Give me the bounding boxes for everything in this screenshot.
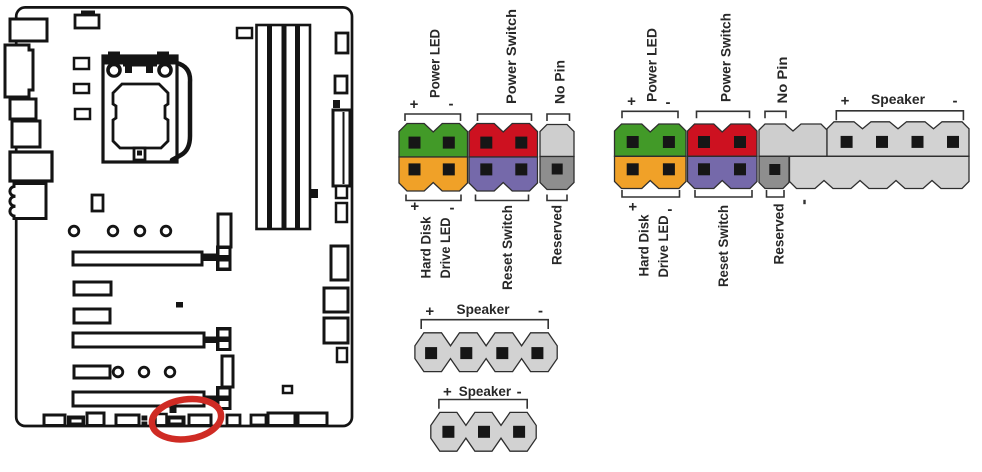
svg-text:+: + bbox=[628, 199, 637, 216]
svg-text:-: - bbox=[517, 383, 522, 400]
svg-text:+: + bbox=[410, 96, 419, 113]
svg-text:-: - bbox=[450, 200, 455, 217]
svg-text:Speaker: Speaker bbox=[459, 383, 512, 399]
svg-text:-: - bbox=[538, 302, 543, 319]
svg-text:Reserved: Reserved bbox=[549, 205, 565, 265]
svg-text:+: + bbox=[443, 383, 452, 400]
svg-text:No Pin: No Pin bbox=[552, 60, 568, 104]
svg-text:No Pin: No Pin bbox=[774, 57, 790, 104]
svg-text:-: - bbox=[449, 96, 454, 113]
svg-text:Power Switch: Power Switch bbox=[503, 9, 519, 104]
svg-text:+: + bbox=[410, 198, 419, 215]
svg-text:-: - bbox=[666, 94, 671, 111]
svg-text:Drive LED: Drive LED bbox=[437, 218, 453, 279]
svg-text:Hard Disk: Hard Disk bbox=[636, 214, 652, 276]
svg-text:Hard Disk: Hard Disk bbox=[417, 216, 433, 278]
svg-text:Power LED: Power LED bbox=[427, 29, 443, 98]
svg-text:Drive LED: Drive LED bbox=[655, 216, 671, 278]
svg-text:Power LED: Power LED bbox=[644, 28, 660, 102]
svg-text:Reset Switch: Reset Switch bbox=[499, 205, 515, 290]
svg-text:Power Switch: Power Switch bbox=[718, 13, 734, 102]
svg-text:-: - bbox=[953, 93, 958, 110]
svg-text:Reset Switch: Reset Switch bbox=[715, 205, 731, 287]
svg-text:Speaker: Speaker bbox=[871, 91, 926, 107]
svg-text:Reserved: Reserved bbox=[771, 204, 787, 265]
svg-text:+: + bbox=[627, 93, 636, 110]
svg-text:-: - bbox=[667, 201, 672, 218]
svg-text:Speaker: Speaker bbox=[457, 301, 511, 317]
svg-text:+: + bbox=[841, 93, 850, 110]
svg-text:+: + bbox=[425, 303, 434, 320]
